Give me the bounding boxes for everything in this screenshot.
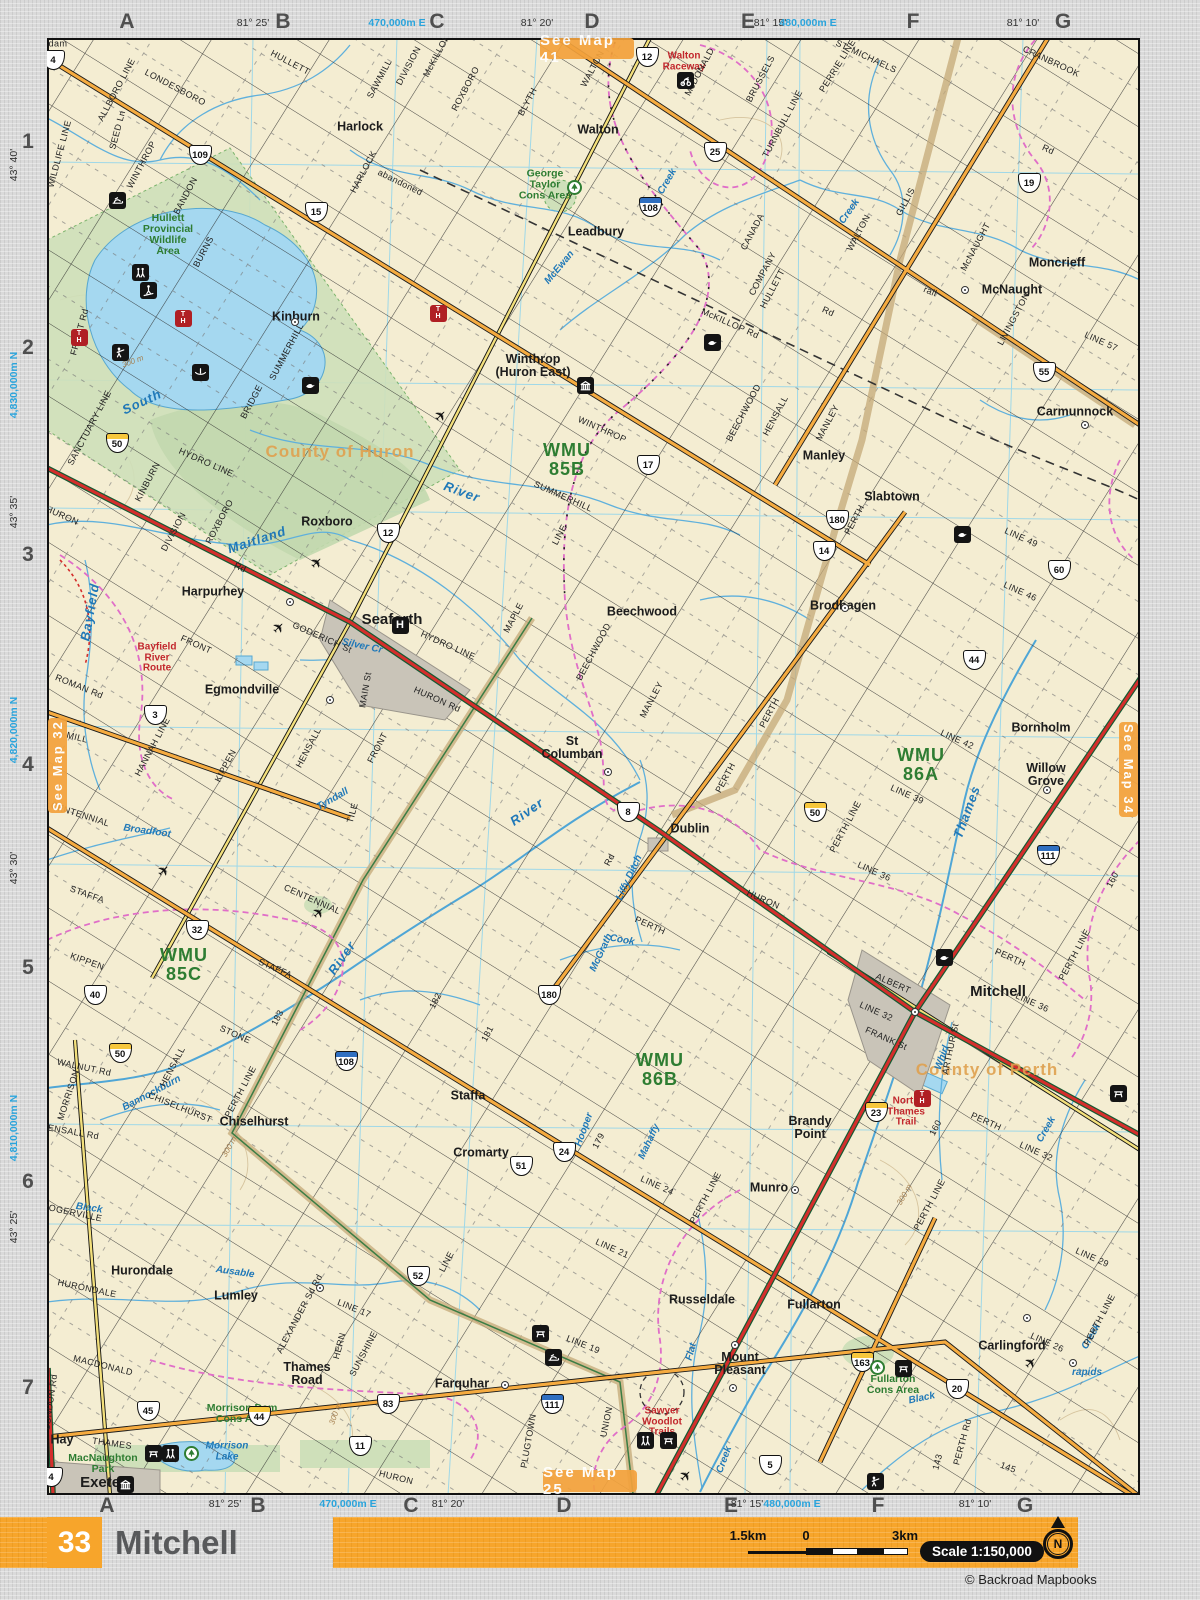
map-label: SANCTUARY LINE — [66, 389, 113, 467]
road-shield: 24 — [553, 1142, 576, 1162]
map-label: Carmunnock — [1037, 405, 1113, 418]
junction-marker — [1069, 1359, 1077, 1367]
map-label: PERTH LINE — [828, 800, 863, 855]
map-label: HURONDALE — [57, 1278, 118, 1300]
map-label: KIPPEN — [69, 952, 106, 973]
road-shield: 109 — [189, 145, 212, 165]
junction-marker — [291, 318, 299, 326]
road-shield: 14 — [813, 541, 836, 561]
poi-icon-th: T H — [175, 310, 192, 327]
map-label: Thames — [951, 784, 983, 840]
coordinate-tick: 81° 20' — [521, 17, 553, 29]
road-shield: 50 — [804, 802, 827, 822]
map-label: LONDESBORO — [143, 68, 207, 108]
map-label: 160 — [928, 1119, 944, 1138]
poi-icon-hunt — [112, 344, 129, 361]
road-shield: 4 — [47, 1467, 63, 1487]
coordinate-tick: 81° 15' — [731, 1498, 763, 1510]
poi-icon-ppl — [637, 1432, 654, 1449]
map-label: WMU 86B — [636, 1051, 684, 1089]
road-shield: 108 — [335, 1051, 358, 1071]
junction-marker — [501, 1381, 509, 1389]
map-label: BRIDGE — [239, 383, 265, 420]
map-label: PERTH LINE — [223, 1065, 258, 1120]
map-label: LINE 36 — [1014, 992, 1050, 1015]
map-label: HURON Rd — [412, 685, 462, 714]
map-label: Mahaffy — [637, 1123, 662, 1162]
coordinate-tick: 81° 25' — [237, 17, 269, 29]
map-label: Bayfield River Route — [138, 642, 177, 674]
grid-row-number: 1 — [22, 130, 34, 154]
map-number-badge: 33 — [47, 1517, 102, 1568]
grid-row-number: 6 — [22, 1170, 34, 1194]
map-label: Bayfield — [78, 582, 102, 642]
map-label: Egmondville — [205, 683, 279, 696]
map-label: Hay — [51, 1433, 74, 1446]
map-label: abandoned — [376, 168, 424, 198]
map-label: Creek — [657, 167, 680, 196]
map-label: MACDONALD — [72, 1354, 134, 1378]
coordinate-tick: 470,000m E — [319, 1498, 376, 1510]
map-label: WALNUT Rd — [56, 1058, 112, 1079]
map-label: BRUSSELS — [745, 54, 777, 104]
grid-column-letter: D — [584, 10, 599, 34]
map-label: LINE 29 — [1074, 1247, 1110, 1270]
junction-marker — [841, 604, 849, 612]
poi-icon-hosp: H — [392, 617, 409, 634]
map-label: LIVINGSTON — [996, 291, 1032, 347]
map-label: SUMMERHILL — [268, 322, 306, 382]
scale-left-label: 1.5km — [730, 1528, 767, 1543]
poi-icon-sled — [545, 1349, 562, 1366]
poi-icon-plane: ✈ — [428, 403, 452, 427]
poi-icon-plane: ✈ — [673, 1463, 697, 1487]
map-label: LINE 17 — [336, 1298, 372, 1320]
coordinate-tick: 43° 30' — [8, 852, 20, 884]
grid-row-number: 7 — [22, 1376, 34, 1400]
poi-icon-ski — [140, 282, 157, 299]
map-label: PERTH Rd — [952, 1418, 973, 1466]
map-label: Brandy Point — [788, 1115, 831, 1141]
poi-icon-bird — [302, 377, 319, 394]
map-label: LINE 32 — [1018, 1141, 1054, 1164]
map-label: ROXBORO — [204, 498, 235, 546]
map-label: Flat — [685, 1342, 700, 1362]
poi-icon-bird — [936, 949, 953, 966]
map-label: SUMMERHILL — [532, 480, 593, 514]
map-label: MANLEY — [639, 680, 666, 719]
poi-icon-gc — [567, 180, 582, 195]
road-shield: 52 — [407, 1266, 430, 1286]
coordinate-tick: 4,830,000m N — [8, 352, 20, 419]
junction-marker — [1043, 786, 1051, 794]
north-arrow-tip — [1051, 1516, 1065, 1528]
map-label: Maitland — [226, 524, 288, 556]
map-label: PERTH — [969, 1111, 1002, 1133]
grid-column-letter: B — [250, 1494, 265, 1518]
scale-bar-seg4 — [883, 1548, 908, 1555]
map-label: HENSALL — [762, 394, 791, 437]
coordinate-tick: 4,820,000m N — [8, 697, 20, 764]
junction-marker — [911, 1008, 919, 1016]
poi-icon-hunt — [867, 1473, 884, 1490]
grid-column-letter: D — [556, 1494, 571, 1518]
junction-marker — [286, 598, 294, 606]
coordinate-tick: 43° 40' — [8, 149, 20, 181]
map-label: PLUGTOWN — [520, 1413, 539, 1469]
grid-column-letter: A — [99, 1494, 114, 1518]
road-shield: 15 — [305, 202, 328, 222]
map-label: MacNaughton Park — [68, 1453, 137, 1475]
map-label: LINE 39 — [889, 784, 925, 807]
map-label: Thames Road — [283, 1361, 330, 1387]
poi-icon-moto — [677, 72, 694, 89]
grid-column-letter: C — [403, 1494, 418, 1518]
map-label: Leadbury — [568, 225, 624, 238]
coordinate-tick: 81° 20' — [432, 1498, 464, 1510]
junction-marker — [1081, 421, 1089, 429]
map-label: 300 m — [221, 1135, 239, 1158]
map-label: MAPLE — [502, 601, 526, 634]
map-label: MAIN St — [358, 671, 374, 708]
map-label: WMU 85B — [543, 441, 591, 479]
map-label: LINE 19 — [565, 1334, 601, 1356]
map-label: LINE 24 — [639, 1175, 675, 1198]
map-label: Beechwood — [607, 605, 677, 618]
map-label: George Taylor Cons Area — [519, 168, 571, 201]
map-label: Farquhar — [435, 1377, 489, 1390]
poi-icon-plane: ✈ — [151, 858, 175, 882]
map-label: HENSALL — [295, 726, 324, 769]
map-label: Creek — [715, 1445, 734, 1475]
road-shield: 108 — [639, 197, 662, 217]
poi-icon-gc — [184, 1446, 199, 1461]
map-label: LINE — [551, 523, 569, 547]
map-label: Slabtown — [864, 490, 920, 503]
grid-column-letter: G — [1017, 1494, 1033, 1518]
grid-column-letter: B — [275, 10, 290, 34]
see-map-41-link[interactable]: See Map 41 — [540, 38, 634, 59]
map-label: STAFFA — [69, 884, 106, 905]
compass-ring: N — [1043, 1529, 1073, 1559]
map-label: River — [508, 796, 547, 829]
road-shield: 17 — [637, 455, 660, 475]
map-label: 183 — [270, 1009, 286, 1028]
map-label: Hullett Provincial Wildlife Area — [143, 213, 193, 257]
map-label: PERTH LINE — [1082, 1293, 1117, 1348]
road-shield: 19 — [1018, 173, 1041, 193]
map-label: Liffy Ditch — [615, 854, 645, 903]
road-shield: 32 — [186, 920, 209, 940]
grid-row-number: 4 — [22, 753, 34, 777]
junction-marker — [604, 768, 612, 776]
map-label: dam — [49, 39, 68, 48]
poi-icon-bldg — [117, 1476, 134, 1493]
road-shield: 83 — [377, 1394, 400, 1414]
see-map-34-link[interactable]: See Map 34 — [1119, 722, 1138, 817]
map-label: HURON — [378, 1469, 414, 1487]
map-label: BEECHWOOD — [725, 383, 763, 444]
poi-icon-canoe — [192, 364, 209, 381]
map-label: 145 — [999, 1461, 1017, 1475]
map-label: Tyndall — [315, 787, 350, 813]
map-label: Lumley — [214, 1289, 258, 1302]
road-shield: 25 — [704, 142, 727, 162]
map-label: Fullarton — [787, 1298, 840, 1311]
road-shield: 4 — [47, 50, 65, 70]
map-title: Mitchell — [115, 1524, 238, 1562]
map-label: HARLOCK — [349, 149, 379, 194]
map-label: PERTH LINE — [912, 1178, 947, 1233]
map-label: FRONT — [366, 731, 390, 765]
map-label: Rd — [820, 305, 835, 319]
map-label: Fullarton Cons Area — [867, 1374, 919, 1396]
map-label: BANDON — [172, 176, 200, 217]
map-label: LINE 57 — [1083, 331, 1119, 354]
poi-icon-plane: ✈ — [1018, 1350, 1042, 1374]
map-label: PERTH LINE — [688, 1171, 723, 1226]
map-label: HERN — [332, 1332, 348, 1361]
coordinate-tick: 81° 10' — [959, 1498, 991, 1510]
poi-icon-plane: ✈ — [304, 550, 328, 574]
grid-column-letter: F — [907, 10, 920, 34]
map-label: CHISELHURST — [147, 1091, 214, 1125]
map-label: BEECHWOOD — [575, 622, 613, 683]
map-label: Roxboro — [301, 515, 352, 528]
map-label: McKILLOP — [422, 38, 452, 79]
map-label: THAMES — [92, 1437, 133, 1452]
coordinate-tick: 81° 25' — [209, 1498, 241, 1510]
poi-icon-ppl — [132, 264, 149, 281]
map-label: WMU 86A — [897, 746, 945, 784]
map-label: CANADA — [739, 212, 766, 252]
poi-icon-th: T H — [914, 1090, 931, 1107]
scale-bar-seg2 — [832, 1548, 858, 1555]
map-label: MANLEY — [815, 403, 842, 442]
map-label: KINBURN — [134, 461, 163, 504]
map-label: WILDLIFE LINE — [47, 119, 74, 188]
map-label: SEED Ln — [108, 110, 127, 151]
map-label: rapids — [1072, 1368, 1102, 1379]
map-label: St Columban — [541, 735, 602, 761]
poi-icon-bldg — [577, 377, 594, 394]
poi-icon-gc — [870, 1360, 885, 1375]
map-label: 160 — [1105, 871, 1121, 890]
footer-bar-left — [0, 1517, 47, 1568]
junction-marker — [316, 1284, 324, 1292]
map-label: HULLETT — [269, 49, 311, 77]
mapbook-page: damHarlockWaltonLeadburyMoncrieffMcNaugh… — [0, 0, 1200, 1600]
coordinate-tick: 480,000m E — [779, 17, 836, 29]
map-label: Ausable — [215, 1265, 255, 1281]
poi-icon-pic — [532, 1325, 549, 1342]
map-label-layer: damHarlockWaltonLeadburyMoncrieffMcNaugh… — [47, 38, 1140, 1495]
map-label: PERTH — [714, 762, 738, 795]
map-label: Staffa — [451, 1089, 486, 1102]
map-label: McNAUGHT — [959, 221, 992, 272]
road-shield: 45 — [137, 1401, 160, 1421]
map-label: 182 — [428, 992, 444, 1011]
map-label: PERTH — [993, 947, 1026, 969]
map-label: HURON — [47, 505, 80, 528]
map-label: KIPPEN — [214, 748, 239, 784]
junction-marker — [961, 286, 969, 294]
grid-column-letter: C — [429, 10, 444, 34]
poi-icon-th: T H — [71, 329, 88, 346]
road-shield: 40 — [84, 985, 107, 1005]
map-label: LINE 21 — [594, 1238, 630, 1261]
map-label: Mount Pleasant — [714, 1351, 765, 1377]
map-label: Russeldale — [669, 1293, 735, 1306]
road-shield: 11 — [349, 1436, 372, 1456]
map-label: River — [442, 479, 482, 505]
coordinate-tick: 43° 25' — [8, 1211, 20, 1243]
scale-zero-label: 0 — [802, 1528, 809, 1543]
scale-bar-seg3 — [858, 1548, 883, 1555]
map-label: LONDON Rd — [47, 1374, 60, 1431]
map-label: FRANK St — [864, 1026, 909, 1053]
road-shield: 8 — [617, 802, 640, 822]
map-label: FRONT — [179, 634, 213, 656]
coordinate-tick: 470,000m E — [368, 17, 425, 29]
grid-column-letter: A — [119, 10, 134, 34]
map-label: McEwan — [543, 249, 577, 286]
poi-icon-pic — [145, 1445, 162, 1462]
map-label: Harlock — [337, 120, 383, 133]
road-shield: 51 — [510, 1156, 533, 1176]
poi-icon-bird — [704, 334, 721, 351]
poi-icon-pic — [660, 1432, 677, 1449]
map-label: 300 m — [328, 1402, 343, 1426]
map-label: PERTH LINE — [1057, 928, 1092, 983]
poi-icon-th: T H — [430, 305, 447, 322]
map-label: WMU 85C — [160, 946, 208, 984]
junction-marker — [326, 696, 334, 704]
map-label: Rd — [232, 561, 247, 575]
poi-icon-plane: ✈ — [266, 615, 290, 639]
map-label: PERTH — [758, 697, 782, 730]
road-shield: 111 — [541, 1394, 564, 1414]
coordinate-tick: 480,000m E — [763, 1498, 820, 1510]
grid-row-number: 5 — [22, 956, 34, 980]
map-label: LINE 46 — [1002, 581, 1038, 604]
poi-icon-bird — [954, 526, 971, 543]
road-shield: 50 — [109, 1043, 132, 1063]
road-shield: 5 — [759, 1455, 782, 1475]
map-label: HYDRO LINE — [419, 630, 477, 663]
map-label: ROMAN Rd — [54, 673, 105, 701]
map-label: McGrath — [589, 932, 616, 973]
poi-icon-pic — [895, 1360, 912, 1377]
map-label: Winthrop (Huron East) — [496, 353, 571, 379]
road-shield: 180 — [538, 985, 561, 1005]
copyright-credit: © Backroad Mapbooks — [965, 1572, 1097, 1587]
map-label: DIVISION — [160, 511, 188, 553]
coordinate-tick: 81° 10' — [1007, 17, 1039, 29]
map-label: Cromarty — [453, 1146, 509, 1159]
map-label: South — [120, 387, 164, 417]
map-label: MILL — [65, 731, 88, 745]
map-label: ALBERT — [874, 972, 912, 996]
map-label: Moncrieff — [1029, 256, 1085, 269]
map-label: DIVISION — [395, 45, 423, 87]
map-label: LINE 36 — [856, 861, 892, 884]
map-label: Dublin — [671, 822, 710, 835]
junction-marker — [1023, 1314, 1031, 1322]
map-label: SUNSHINE — [348, 1330, 380, 1378]
map-label: CRANBROOK — [1021, 45, 1081, 80]
grid-row-number: 2 — [22, 336, 34, 360]
road-shield: 12 — [636, 47, 659, 67]
grid-column-letter: F — [872, 1494, 885, 1518]
map-label: Rd — [1040, 143, 1055, 157]
map-label: Munro — [750, 1181, 788, 1194]
map-label: 179 — [591, 1132, 607, 1151]
road-shield: 23 — [865, 1102, 888, 1122]
map-label: WINTHROP — [126, 140, 159, 191]
map-label: MORRISON — [56, 1068, 81, 1121]
map-label: River — [326, 939, 359, 978]
road-shield: 50 — [106, 433, 129, 453]
map-label: rail — [922, 285, 938, 299]
map-label: 143 — [931, 1453, 944, 1471]
map-label: County of Huron — [265, 443, 414, 461]
road-shield: 111 — [1037, 845, 1060, 865]
map-label: HURON — [745, 889, 781, 912]
map-label: 181 — [480, 1025, 496, 1044]
see-map-32-link[interactable]: See Map 32 — [48, 718, 67, 813]
map-label: HENSALL Rd — [47, 1122, 100, 1141]
compass-letter: N — [1047, 1533, 1069, 1555]
map-label: TURNBULL LINE — [761, 89, 804, 160]
road-shield: 20 — [946, 1379, 969, 1399]
map-label: Bornholm — [1011, 721, 1070, 734]
scale-ratio-badge: Scale 1:150,000 — [920, 1541, 1044, 1562]
map-label: McNaught — [982, 283, 1042, 296]
map-label: STAFFA — [257, 957, 293, 980]
map-label: LINE 32 — [858, 1001, 894, 1024]
map-label: ROXBORO — [450, 65, 481, 113]
map-label: Rd — [603, 852, 617, 867]
map-label: Creek — [1036, 1115, 1059, 1144]
map-label: Manley — [803, 449, 845, 462]
junction-marker — [729, 1384, 737, 1392]
road-shield: 55 — [1033, 362, 1056, 382]
grid-column-letter: G — [1055, 10, 1071, 34]
see-map-25-link[interactable]: See Map 25 — [543, 1470, 637, 1492]
junction-marker — [791, 1186, 799, 1194]
map-label: SAWMILL — [366, 58, 395, 100]
map-label: Harpurhey — [182, 585, 245, 598]
map-label: BURNS — [192, 235, 216, 269]
map-label: UNION — [599, 1406, 615, 1438]
map-label: BLYTH — [517, 86, 540, 117]
coordinate-tick: 4,810,000m N — [8, 1095, 20, 1162]
map-label: PERTH — [633, 915, 666, 937]
north-arrow: N — [1040, 1516, 1076, 1564]
scale-right-label: 3km — [892, 1528, 918, 1543]
map-label: Willow Grove — [1026, 762, 1065, 788]
poi-icon-pic — [1110, 1085, 1127, 1102]
map-label: GILLIS — [895, 186, 918, 217]
junction-marker — [731, 1341, 739, 1349]
road-shield: 60 — [1048, 560, 1071, 580]
poi-icon-sled — [109, 192, 126, 209]
map-label: Broadfoot — [123, 823, 172, 840]
map-label: TILE — [346, 802, 360, 824]
map-label: STONE — [218, 1024, 252, 1046]
map-label: HYDRO LINE — [177, 447, 235, 480]
